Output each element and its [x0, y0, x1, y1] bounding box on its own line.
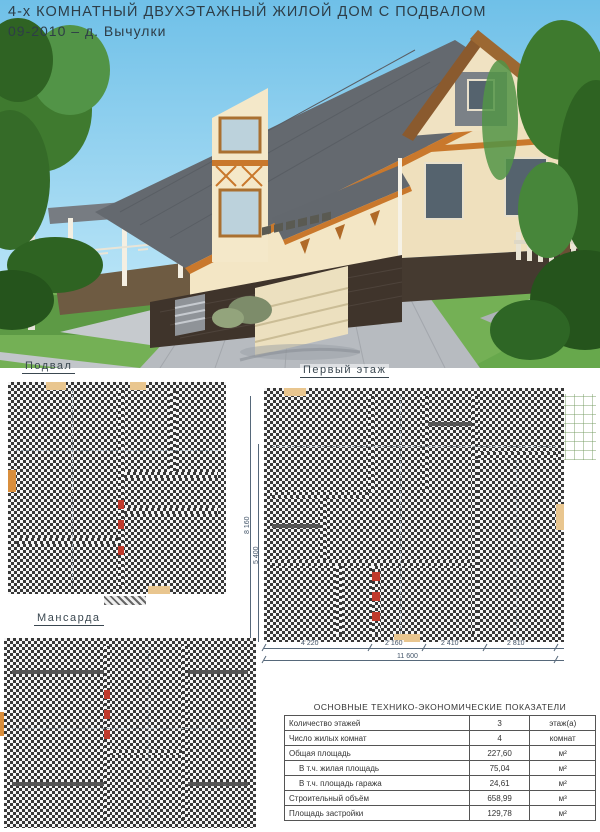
table-row: Количество этажей3этаж(а) — [285, 716, 596, 731]
plan-first-floor-title: Первый этаж — [300, 364, 389, 378]
tec-table-title: ОСНОВНЫЕ ТЕХНИКО-ЭКОНОМИЧЕСКИЕ ПОКАЗАТЕЛ… — [284, 702, 596, 712]
dim-total: 11 600 — [396, 653, 419, 660]
page-title-line1: 4-х КОМНАТНЫЙ ДВУХЭТАЖНЫЙ ЖИЛОЙ ДОМ С ПО… — [8, 4, 486, 20]
house-render — [0, 0, 600, 368]
dim-8160: 8 160 — [244, 516, 251, 534]
table-row: Площадь застройки129,78м² — [285, 806, 596, 821]
plan-basement: Подвал Гараж 24.61 5.77 — [2, 354, 242, 600]
architectural-sheet: 4-х КОМНАТНЫЙ ДВУХЭТАЖНЫЙ ЖИЛОЙ ДОМ С ПО… — [0, 0, 600, 832]
table-row: Общая площадь227,60м² — [285, 746, 596, 761]
table-row: В т.ч. жилая площадь75,04м² — [285, 761, 596, 776]
dim-2810: 2 810 — [506, 640, 526, 647]
plan-attic: Мансарда 4.75 Спальня 20.99 5.34 — [0, 594, 262, 832]
plan-first-floor: Первый этаж Терраса Спальня 14.73 — [244, 354, 600, 660]
chimney-hatch — [104, 596, 146, 605]
tec-table: ОСНОВНЫЕ ТЕХНИКО-ЭКОНОМИЧЕСКИЕ ПОКАЗАТЕЛ… — [284, 702, 596, 821]
plan-basement-title: Подвал — [22, 360, 75, 374]
plan-attic-title: Мансарда — [34, 612, 104, 626]
table-row: В т.ч. площадь гаража24,61м² — [285, 776, 596, 791]
table-row: Строительный объём658,99м³ — [285, 791, 596, 806]
dim-2410: 2 410 — [440, 640, 460, 647]
page-title-line2: 09-2010 – д. Вычулки — [8, 23, 166, 39]
table-row: Число жилых комнат4комнат — [285, 731, 596, 746]
dim-5400: 5 400 — [253, 546, 260, 564]
dormer — [212, 88, 268, 262]
dim-2160: 2 160 — [384, 640, 404, 647]
dim-4220: 4 220 — [300, 640, 320, 647]
